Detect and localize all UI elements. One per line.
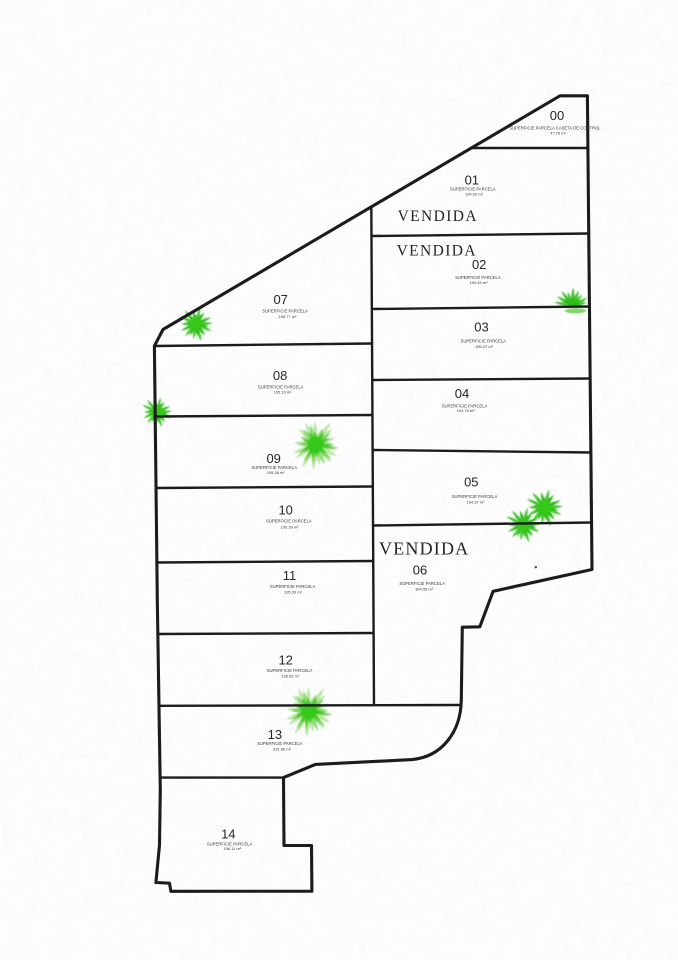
svg-text:01: 01 <box>465 172 479 187</box>
svg-text:06: 06 <box>413 563 427 578</box>
svg-text:07: 07 <box>273 292 287 307</box>
svg-text:SUPERFICIE PARCELA: SUPERFICIE PARCELA <box>266 518 312 523</box>
svg-text:196.11 m²: 196.11 m² <box>223 846 241 851</box>
svg-text:194.76 m²: 194.76 m² <box>457 408 476 413</box>
svg-text:190.49 m²: 190.49 m² <box>469 280 488 285</box>
svg-text:11: 11 <box>283 568 297 583</box>
svg-text:195.02 m²: 195.02 m² <box>281 674 300 679</box>
svg-text:SUPERFICIE PARCELA: SUPERFICIE PARCELA <box>257 741 303 746</box>
svg-text:304.55 m²: 304.55 m² <box>415 587 434 592</box>
svg-text:00: 00 <box>550 108 564 123</box>
svg-text:VENDIDA: VENDIDA <box>397 243 477 260</box>
svg-text:05: 05 <box>464 474 478 489</box>
svg-text:04: 04 <box>455 386 469 401</box>
svg-text:08: 08 <box>273 368 287 383</box>
svg-text:195.19 m²: 195.19 m² <box>273 390 292 395</box>
svg-text:13: 13 <box>268 727 282 742</box>
svg-text:02: 02 <box>472 257 486 272</box>
svg-text:14: 14 <box>221 827 235 842</box>
svg-text:231.89 m²: 231.89 m² <box>273 747 292 752</box>
svg-text:SUPERFICIE PARCELA: SUPERFICIE PARCELA <box>262 308 308 313</box>
svg-text:SUPERFICIE PARCELA: SUPERFICIE PARCELA <box>258 384 304 389</box>
svg-text:12: 12 <box>278 653 292 668</box>
svg-text:SUPERFICIE PARCELA: SUPERFICIE PARCELA <box>270 584 316 589</box>
svg-text:47.76 m²: 47.76 m² <box>550 130 566 135</box>
svg-text:195.27 m²: 195.27 m² <box>475 344 494 349</box>
svg-text:10: 10 <box>278 502 292 517</box>
svg-text:SUPERFICIE PARCELA: SUPERFICIE PARCELA <box>267 668 313 673</box>
svg-text:194.37 m²: 194.37 m² <box>467 500 486 505</box>
svg-text:SUPERFICIE PARCELA: SUPERFICIE PARCELA <box>461 339 507 344</box>
svg-text:SUPERFICIE PARCELA: SUPERFICIE PARCELA <box>399 581 445 586</box>
svg-text:194.92 m²: 194.92 m² <box>465 192 484 197</box>
svg-text:SUPERFICIE PARCELA: SUPERFICIE PARCELA <box>452 494 498 499</box>
svg-text:03: 03 <box>474 320 488 335</box>
svg-text:198.77 m²: 198.77 m² <box>278 314 297 319</box>
svg-text:195.39 m²: 195.39 m² <box>280 525 299 530</box>
svg-text:195.38 m²: 195.38 m² <box>267 470 286 475</box>
svg-text:VENDIDA: VENDIDA <box>398 208 478 225</box>
svg-text:VENDIDA: VENDIDA <box>379 538 469 558</box>
svg-text:09: 09 <box>266 451 280 466</box>
svg-text:195.39 m²: 195.39 m² <box>284 590 303 595</box>
